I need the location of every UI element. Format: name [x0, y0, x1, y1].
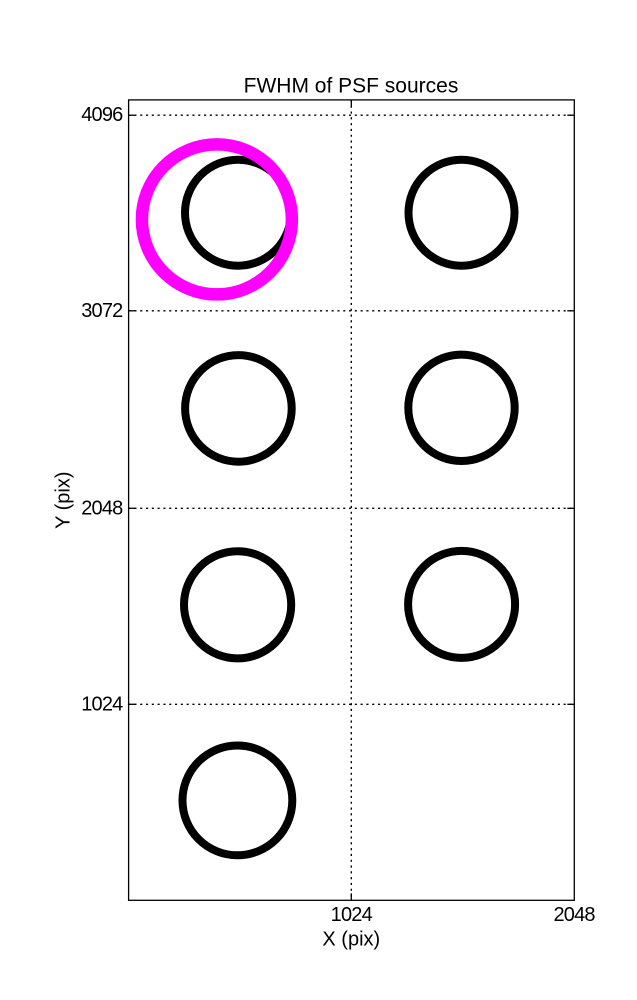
svg-text:2048: 2048 — [553, 904, 595, 926]
svg-text:1024: 1024 — [331, 904, 373, 926]
svg-text:1024: 1024 — [81, 694, 123, 716]
svg-text:FWHM of PSF sources: FWHM of PSF sources — [244, 75, 459, 98]
svg-text:3072: 3072 — [81, 300, 123, 322]
svg-text:X (pix): X (pix) — [322, 928, 380, 950]
svg-text:4096: 4096 — [81, 104, 123, 126]
svg-text:2048: 2048 — [81, 498, 123, 520]
svg-text:Y (pix): Y (pix) — [53, 471, 75, 528]
